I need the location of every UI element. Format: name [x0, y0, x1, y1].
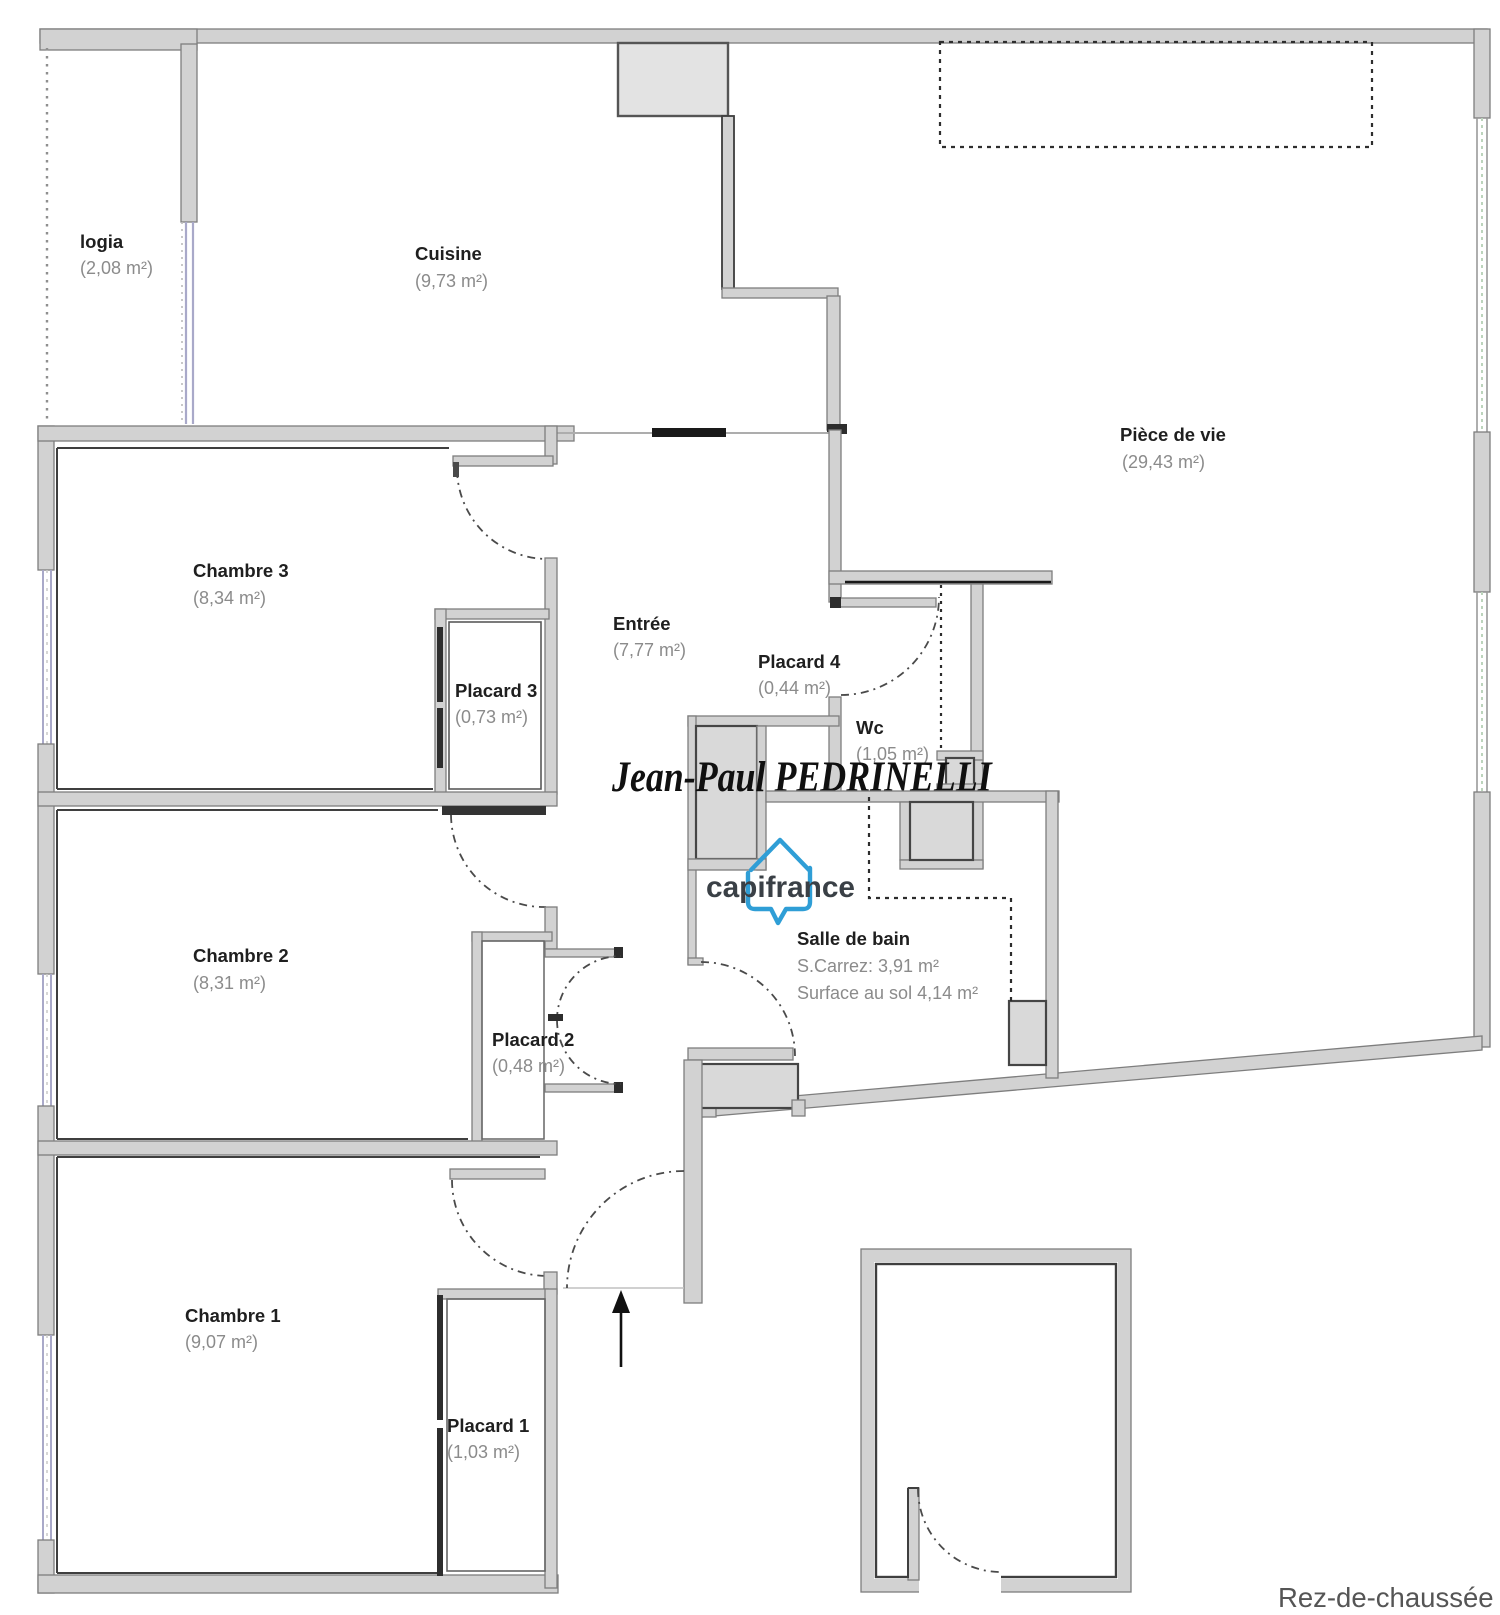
svg-text:(9,73 m²): (9,73 m²) — [415, 271, 488, 291]
svg-text:Placard 3: Placard 3 — [455, 680, 537, 701]
svg-text:Chambre 2: Chambre 2 — [193, 945, 289, 966]
svg-text:Placard 1: Placard 1 — [447, 1415, 529, 1436]
svg-text:(29,43 m²): (29,43 m²) — [1122, 452, 1205, 472]
svg-text:capifrance: capifrance — [706, 871, 855, 904]
svg-text:(8,31 m²): (8,31 m²) — [193, 973, 266, 993]
svg-text:logia: logia — [80, 231, 124, 252]
svg-text:Salle de bain: Salle de bain — [797, 928, 910, 949]
svg-text:(8,34 m²): (8,34 m²) — [193, 588, 266, 608]
svg-text:(7,77 m²): (7,77 m²) — [613, 640, 686, 660]
svg-text:Entrée: Entrée — [613, 613, 671, 634]
svg-text:(1,03 m²): (1,03 m²) — [447, 1442, 520, 1462]
svg-text:(0,48 m²): (0,48 m²) — [492, 1056, 565, 1076]
svg-text:Placard 2: Placard 2 — [492, 1029, 574, 1050]
svg-text:Placard 4: Placard 4 — [758, 651, 841, 672]
svg-text:Wc: Wc — [856, 717, 884, 738]
svg-text:Surface au sol 4,14 m²: Surface au sol 4,14 m² — [797, 983, 978, 1003]
svg-text:Rez-de-chaussée: Rez-de-chaussée — [1278, 1582, 1494, 1613]
svg-text:Pièce de vie: Pièce de vie — [1120, 424, 1226, 445]
svg-text:Chambre 1: Chambre 1 — [185, 1305, 281, 1326]
svg-text:S.Carrez: 3,91 m²: S.Carrez: 3,91 m² — [797, 956, 939, 976]
svg-text:Cuisine: Cuisine — [415, 243, 482, 264]
svg-text:Chambre 3: Chambre 3 — [193, 560, 289, 581]
svg-text:(9,07 m²): (9,07 m²) — [185, 1332, 258, 1352]
svg-text:(0,73 m²): (0,73 m²) — [455, 707, 528, 727]
svg-text:(0,44 m²): (0,44 m²) — [758, 678, 831, 698]
svg-text:(2,08 m²): (2,08 m²) — [80, 258, 153, 278]
